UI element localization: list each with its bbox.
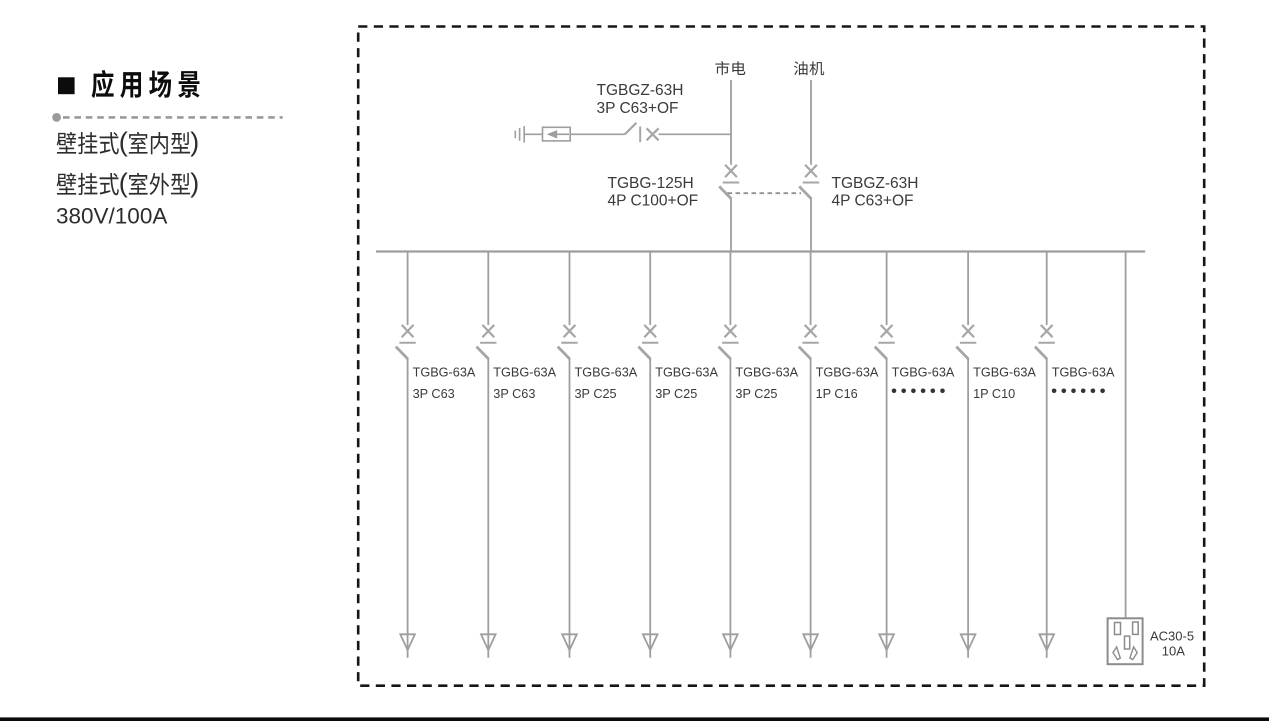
svg-text:380V/100A: 380V/100A xyxy=(56,204,167,229)
svg-text:3P C63: 3P C63 xyxy=(413,387,455,401)
svg-text:3P C25: 3P C25 xyxy=(735,387,777,401)
svg-text:3P C25: 3P C25 xyxy=(575,387,617,401)
svg-text:TGBG-63A: TGBG-63A xyxy=(973,365,1036,379)
svg-text:TGBG-63A: TGBG-63A xyxy=(735,365,798,379)
svg-text:4P C63+OF: 4P C63+OF xyxy=(832,193,914,210)
svg-text:): ) xyxy=(190,127,199,157)
svg-text:(: ( xyxy=(119,127,128,157)
svg-text:3P C63+OF: 3P C63+OF xyxy=(597,100,679,117)
svg-text:TGBG-63A: TGBG-63A xyxy=(413,365,476,379)
svg-text:1P C16: 1P C16 xyxy=(816,387,858,401)
svg-text:TGBG-63A: TGBG-63A xyxy=(892,365,955,379)
svg-text:TGBGZ-63H: TGBGZ-63H xyxy=(597,82,684,99)
svg-text:(: ( xyxy=(119,168,128,198)
svg-text:TGBG-63A: TGBG-63A xyxy=(575,365,638,379)
svg-text:TGBG-63A: TGBG-63A xyxy=(493,365,556,379)
svg-text:AC30-5: AC30-5 xyxy=(1150,629,1194,644)
svg-text:TGBG-63A: TGBG-63A xyxy=(816,365,879,379)
svg-text:TGBGZ-63H: TGBGZ-63H xyxy=(832,175,919,192)
svg-text:1P C10: 1P C10 xyxy=(973,387,1015,401)
svg-text:3P C25: 3P C25 xyxy=(655,387,697,401)
svg-text:3P C63: 3P C63 xyxy=(493,387,535,401)
svg-text:): ) xyxy=(190,168,199,198)
svg-text:10A: 10A xyxy=(1162,644,1185,659)
svg-text:4P C100+OF: 4P C100+OF xyxy=(608,193,699,210)
svg-text:TGBG-125H: TGBG-125H xyxy=(608,175,694,192)
svg-text:TGBG-63A: TGBG-63A xyxy=(655,365,718,379)
svg-text:TGBG-63A: TGBG-63A xyxy=(1052,365,1115,379)
